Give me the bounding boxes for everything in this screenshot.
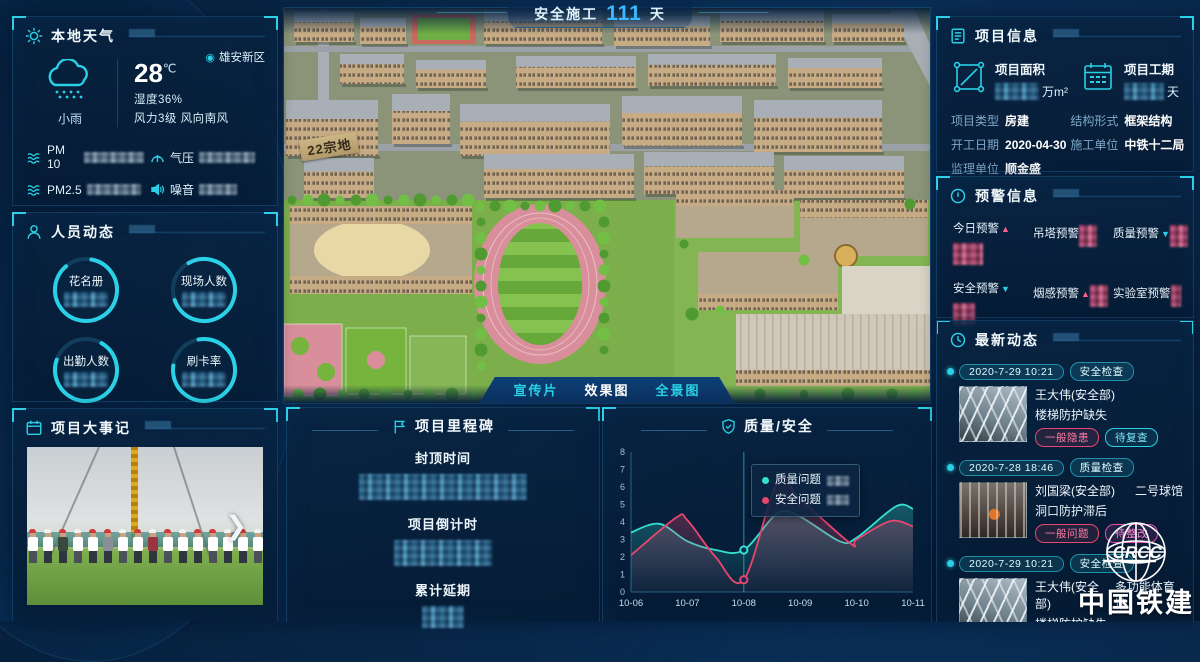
- weather-panel-icon: [25, 27, 43, 45]
- crcc-name: 中国铁建: [1078, 590, 1194, 617]
- person-figure: [57, 529, 68, 592]
- crcc-logo: CRCC 中国铁建: [1078, 519, 1194, 617]
- update-entry-1[interactable]: 2020-7-29 10:21安全检查王大伟(安全部)楼梯防护缺失一般隐患待复查: [947, 357, 1183, 453]
- calendar-icon: [1080, 59, 1116, 95]
- legend-series-name: 质量问题: [775, 471, 821, 491]
- quality-safety-chart[interactable]: 01234567810-0610-0710-0810-0910-1010-11 …: [603, 440, 931, 621]
- pressure-icon: [150, 151, 165, 164]
- milestone-header-wing: [304, 422, 379, 431]
- ring-label: 出勤人数: [63, 353, 109, 369]
- photo-next-button[interactable]: ❯: [225, 511, 247, 542]
- svg-text:10-06: 10-06: [619, 598, 643, 609]
- scene-view-tabs: 宣传片效果图全景图: [479, 377, 734, 403]
- svg-text:10-11: 10-11: [901, 598, 925, 609]
- milestone-photo[interactable]: ❯: [27, 447, 263, 605]
- svg-text:0: 0: [620, 587, 625, 597]
- milestone-item-2: 项目倒计时: [394, 514, 492, 566]
- weather-metric-3: PM2.5: [27, 181, 144, 198]
- svg-text:10-10: 10-10: [844, 598, 868, 609]
- project-info-header-line: [1053, 29, 1181, 37]
- weather-metric-value-redacted: [87, 184, 141, 195]
- progress-ring: [168, 254, 240, 326]
- person-figure: [72, 529, 83, 592]
- personnel-ring-4: 刷卡率: [149, 333, 259, 407]
- mist-icon: [27, 183, 42, 196]
- personnel-rings-grid: 花名册现场人数出勤人数刷卡率: [13, 247, 277, 407]
- project-duration-value-redacted: [1124, 83, 1164, 100]
- warning-label: 安全预警: [953, 283, 999, 295]
- milestone-item-label: 项目倒计时: [394, 514, 492, 533]
- svg-text:10-09: 10-09: [788, 598, 812, 609]
- project-field-value: 框架结构: [1124, 114, 1172, 128]
- panel-project-milestones: 项目里程碑 封顶时间项目倒计时累计延期: [286, 407, 600, 622]
- rain-cloud-icon: [41, 59, 99, 103]
- weather-panel-title: 本地天气: [51, 26, 115, 46]
- trend-up-icon: ▲: [1081, 289, 1090, 299]
- progress-ring: [50, 334, 122, 406]
- person-figure: [102, 529, 113, 592]
- tooltip-series-row: 安全问题: [762, 491, 849, 511]
- area-icon: [951, 59, 987, 95]
- header-decor-left: [431, 12, 507, 19]
- weather-metric-1: PM 10: [27, 143, 144, 171]
- humidity-text: 湿度36%: [134, 91, 229, 107]
- weather-condition: 小雨: [27, 59, 118, 127]
- warning-stat-5: 烟感预警▲: [1033, 279, 1109, 325]
- issue-description: 洞口防护滞后: [1035, 502, 1183, 519]
- project-area-label: 项目面积: [995, 59, 1068, 78]
- weather-header-line: [129, 29, 265, 37]
- svg-text:2: 2: [620, 552, 625, 562]
- svg-text:6: 6: [620, 482, 625, 492]
- location-pin-icon: ◉: [205, 51, 215, 64]
- person-figure: [192, 529, 203, 592]
- project-duration-unit: 天: [1167, 83, 1179, 100]
- project-field-1: 项目类型房建: [951, 112, 1066, 129]
- warning-stat-2: 吊塔预警: [1033, 219, 1109, 265]
- svg-text:CRCC: CRCC: [1111, 542, 1164, 562]
- entry-timestamp: 2020-7-29 10:21: [959, 556, 1064, 572]
- header-decor-right: [693, 12, 769, 19]
- svg-text:7: 7: [620, 465, 625, 475]
- location-name: 雄安新区: [219, 49, 265, 65]
- personnel-header-line: [129, 225, 265, 233]
- events-panel-title: 项目大事记: [51, 418, 131, 438]
- warning-count-redacted: [1079, 225, 1097, 247]
- milestone-item-value-redacted: [359, 474, 527, 500]
- milestone-panel-title: 项目里程碑: [415, 416, 495, 436]
- weather-metric-value-redacted: [84, 152, 144, 163]
- weather-metrics-grid: PM 10气压PM2.5噪音: [27, 143, 267, 198]
- panel-local-weather: 本地天气 ◉ 雄安新区 小雨 28℃ 湿度36% 风力3级 风向南风 PM 10…: [12, 16, 278, 206]
- page-title: 安全施工: [534, 4, 598, 24]
- document-icon: [949, 27, 967, 45]
- personnel-ring-1: 花名册: [31, 253, 141, 327]
- person-figure: [252, 529, 263, 592]
- temperature-unit: ℃: [163, 62, 176, 76]
- weather-metric-value-redacted: [199, 184, 237, 195]
- tooltip-value-redacted: [827, 495, 849, 505]
- panel-personnel-dynamics: 人员动态 花名册现场人数出勤人数刷卡率: [12, 212, 278, 402]
- wind-text: 风力3级 风向南风: [134, 110, 229, 126]
- svg-text:4: 4: [620, 517, 625, 527]
- personnel-ring-3: 出勤人数: [31, 333, 141, 407]
- legend-dot-icon: [762, 477, 769, 484]
- project-field-5: 监理单位顺金盛: [951, 160, 1066, 177]
- weather-metric-label: PM2.5: [47, 183, 82, 197]
- trend-down-icon: ▼: [1001, 284, 1010, 294]
- page-header: 安全施工 111 天: [0, 0, 1200, 24]
- entry-photo-thumbnail[interactable]: [959, 578, 1027, 622]
- inspector-name: 王大伟(安全部): [1035, 386, 1115, 403]
- issue-description: 楼梯防护缺失: [1035, 406, 1183, 423]
- personnel-panel-title: 人员动态: [51, 222, 115, 242]
- project-field-label: 监理单位: [951, 162, 999, 176]
- safety-days-count: 111: [606, 3, 642, 24]
- panel-quality-safety: 质量/安全 01234567810-0610-0710-0810-0910-10…: [602, 407, 932, 622]
- location-indicator: ◉ 雄安新区: [205, 49, 265, 65]
- aerial-render: [284, 8, 930, 403]
- trend-up-icon: ▲: [1001, 224, 1010, 234]
- crane-mast: [131, 447, 138, 542]
- quality-header-wing: [826, 422, 901, 431]
- warning-label: 今日预警: [953, 223, 999, 235]
- ring-label: 花名册: [69, 273, 104, 289]
- trend-down-icon: ▼: [1161, 229, 1170, 239]
- project-area-value-redacted: [995, 83, 1039, 100]
- weather-metric-label: 气压: [170, 149, 194, 166]
- warning-stat-6: 实验室预警: [1113, 279, 1189, 325]
- milestone-items: 封顶时间项目倒计时累计延期: [287, 448, 599, 642]
- chart-tooltip: 质量问题安全问题: [751, 464, 860, 517]
- project-field-label: 施工单位: [1070, 138, 1118, 152]
- weather-metric-label: 噪音: [170, 181, 194, 198]
- warning-label: 吊塔预警: [1033, 228, 1079, 240]
- entry-timestamp: 2020-7-28 18:46: [959, 460, 1064, 476]
- warning-count-redacted: [1090, 285, 1108, 307]
- flag-icon: [391, 418, 408, 435]
- project-field-2: 结构形式框架结构: [1070, 112, 1184, 129]
- person-figure: [177, 529, 188, 592]
- weather-metric-value-redacted: [199, 152, 255, 163]
- weather-condition-label: 小雨: [27, 110, 113, 127]
- svg-text:8: 8: [620, 447, 625, 457]
- crcc-globe-icon: CRCC: [1084, 519, 1188, 585]
- alert-shield-icon: [949, 187, 967, 205]
- entry-type-badge: 安全检查: [1070, 362, 1134, 381]
- svg-text:10-07: 10-07: [675, 598, 699, 609]
- milestone-header-wing: [508, 422, 583, 431]
- personnel-ring-2: 现场人数: [149, 253, 259, 327]
- latest-panel-title: 最新动态: [975, 330, 1039, 350]
- person-figure: [27, 529, 38, 592]
- warning-label: 质量预警: [1113, 228, 1159, 240]
- panel-warning-info: 预警信息 今日预警▲吊塔预警质量预警▼安全预警▼烟感预警▲实验室预警: [936, 176, 1194, 318]
- timeline-dot-icon: [947, 368, 954, 375]
- milestone-item-label: 封顶时间: [359, 448, 527, 467]
- ring-value-redacted: [182, 292, 226, 307]
- warning-label: 烟感预警: [1033, 288, 1079, 300]
- svg-text:10-08: 10-08: [732, 598, 756, 609]
- warning-stat-3: 质量预警▼: [1113, 219, 1189, 265]
- project-field-4: 施工单位中铁十二局: [1070, 136, 1184, 153]
- warning-count-redacted: [1171, 285, 1181, 307]
- person-figure: [117, 529, 128, 592]
- 3d-scene-viewport[interactable]: 22宗地 宣传片效果图全景图: [284, 8, 930, 403]
- project-field-value: 顺金盛: [1005, 162, 1041, 176]
- entry-photo-thumbnail[interactable]: [959, 386, 1027, 442]
- scene-tab-3[interactable]: 全景图: [656, 380, 701, 399]
- entry-location: 二号球馆: [1135, 482, 1183, 499]
- warnings-panel-title: 预警信息: [975, 186, 1039, 206]
- warning-stat-1: 今日预警▲: [953, 219, 1029, 265]
- warnings-header-line: [1053, 189, 1181, 197]
- panel-project-milestone-photos: 项目大事记 ❯: [12, 408, 278, 621]
- inspector-name: 刘国梁(安全部): [1035, 482, 1115, 499]
- person-figure: [162, 529, 173, 592]
- weather-metric-2: 气压: [150, 143, 267, 171]
- scene-tab-1[interactable]: 宣传片: [513, 380, 558, 399]
- project-field-label: 结构形式: [1070, 114, 1118, 128]
- warning-count-redacted: [953, 243, 983, 265]
- clock-icon: [949, 331, 967, 349]
- progress-ring: [168, 334, 240, 406]
- events-header-line: [145, 421, 265, 429]
- timeline-dot-icon: [947, 464, 954, 471]
- weather-metric-label: PM 10: [47, 143, 79, 171]
- status-badge: 待复查: [1105, 428, 1158, 447]
- ring-label: 现场人数: [181, 273, 227, 289]
- timeline-dot-icon: [947, 560, 954, 567]
- project-field-3: 开工日期2020-04-30: [951, 136, 1066, 153]
- ring-value-redacted: [64, 372, 108, 387]
- calendar-event-icon: [25, 419, 43, 437]
- warning-label: 实验室预警: [1113, 288, 1171, 300]
- person-figure: [207, 529, 218, 592]
- entry-type-badge: 质量检查: [1070, 458, 1134, 477]
- project-duration-label: 项目工期: [1124, 59, 1179, 78]
- milestone-item-1: 封顶时间: [359, 448, 527, 500]
- project-info-title: 项目信息: [975, 26, 1039, 46]
- ring-value-redacted: [64, 292, 108, 307]
- warning-stat-4: 安全预警▼: [953, 279, 1029, 325]
- svg-text:5: 5: [620, 500, 625, 510]
- person-icon: [25, 223, 43, 241]
- project-duration-stat: 项目工期 天: [1080, 59, 1179, 100]
- svg-text:1: 1: [620, 570, 625, 580]
- person-figure: [42, 529, 53, 592]
- project-info-fields: 项目类型房建结构形式框架结构开工日期2020-04-30施工单位中铁十二局监理单…: [937, 102, 1193, 177]
- legend-dot-icon: [762, 497, 769, 504]
- milestone-item-label: 累计延期: [415, 580, 471, 599]
- milestone-item-value-redacted: [394, 540, 492, 566]
- project-area-unit: 万m²: [1042, 83, 1068, 100]
- scene-tab-2[interactable]: 效果图: [584, 380, 629, 399]
- person-figure: [87, 529, 98, 592]
- ring-label: 刷卡率: [187, 353, 222, 369]
- project-field-value: 房建: [1005, 114, 1029, 128]
- weather-metric-4: 噪音: [150, 181, 267, 198]
- person-figure: [147, 529, 158, 592]
- warning-count-redacted: [1170, 225, 1188, 247]
- quality-header-wing: [633, 422, 708, 431]
- project-area-stat: 项目面积 万m²: [951, 59, 1068, 100]
- mist-icon: [27, 151, 42, 164]
- project-field-label: 项目类型: [951, 114, 999, 128]
- tooltip-value-redacted: [827, 476, 849, 486]
- legend-series-name: 安全问题: [775, 491, 821, 511]
- panel-project-info: 项目信息 项目面积 万m² 项目工期 天 项目类型房建结构形式: [936, 16, 1194, 172]
- entry-timestamp: 2020-7-29 10:21: [959, 364, 1064, 380]
- project-field-value: 中铁十二局: [1124, 138, 1184, 152]
- entry-photo-thumbnail[interactable]: [959, 482, 1027, 538]
- progress-ring: [50, 254, 122, 326]
- tooltip-series-row: 质量问题: [762, 471, 849, 491]
- quality-panel-title: 质量/安全: [744, 416, 814, 436]
- ring-value-redacted: [182, 372, 226, 387]
- project-field-value: 2020-04-30: [1005, 138, 1066, 152]
- noise-icon: [150, 183, 165, 196]
- safety-days-unit: 天: [650, 4, 666, 24]
- milestone-item-value-redacted: [422, 606, 464, 628]
- status-badge: 一般隐患: [1035, 428, 1099, 447]
- latest-header-line: [1053, 333, 1181, 341]
- warnings-grid: 今日预警▲吊塔预警质量预警▼安全预警▼烟感预警▲实验室预警: [937, 211, 1193, 325]
- svg-text:3: 3: [620, 535, 625, 545]
- person-figure: [132, 529, 143, 592]
- project-field-label: 开工日期: [951, 138, 999, 152]
- shield-check-icon: [720, 418, 737, 435]
